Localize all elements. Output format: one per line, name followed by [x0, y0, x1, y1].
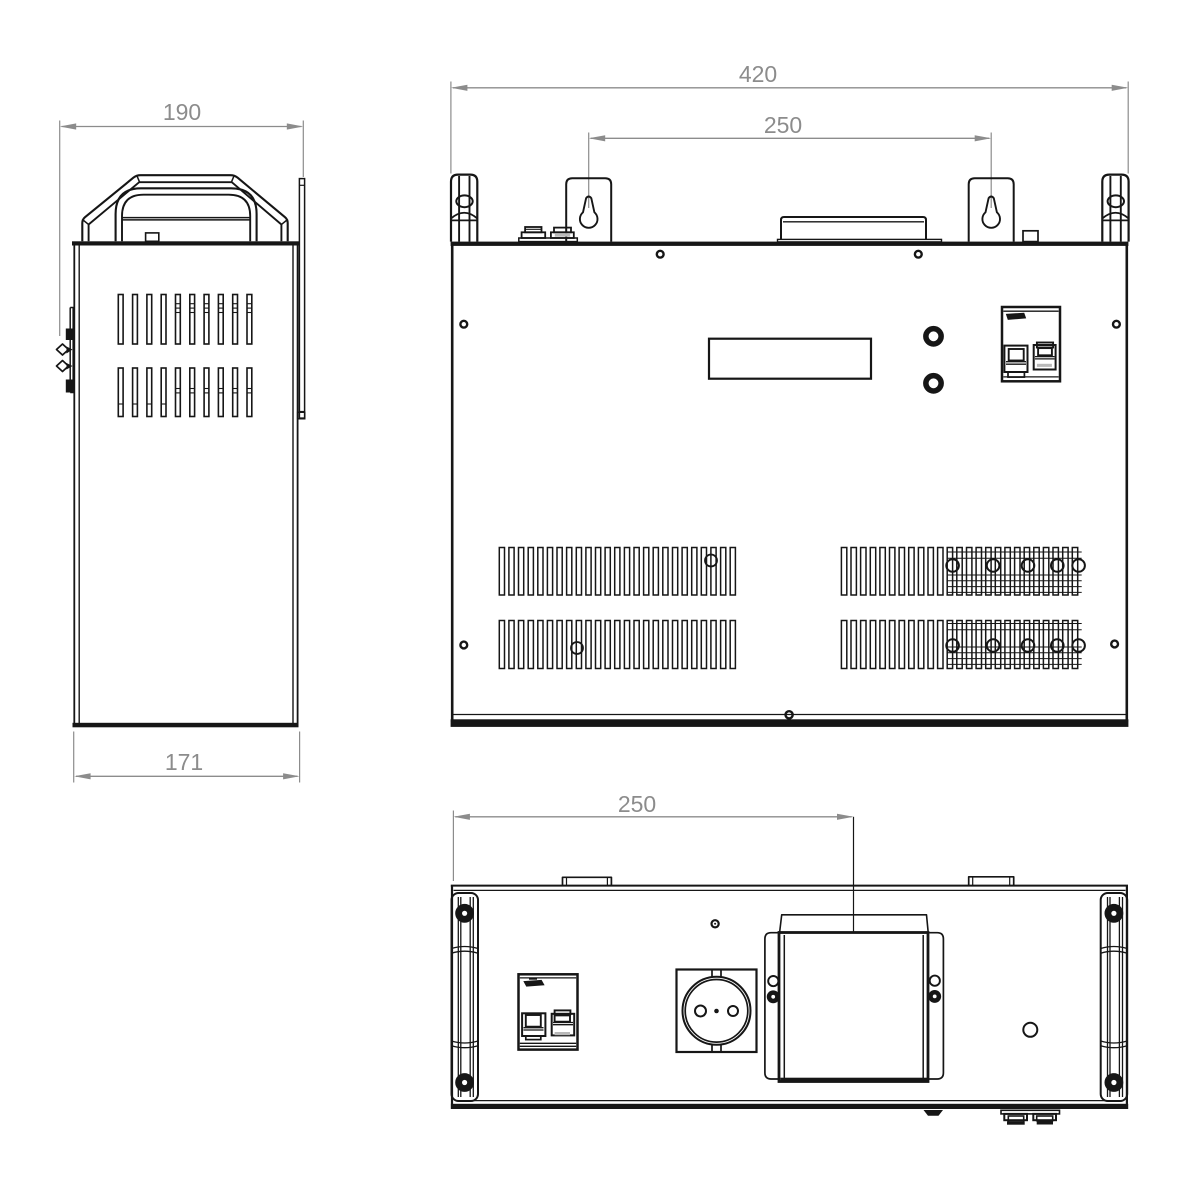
- svg-text:250: 250: [618, 791, 656, 817]
- svg-text:190: 190: [163, 99, 201, 125]
- svg-text:171: 171: [165, 749, 203, 775]
- svg-text:250: 250: [764, 112, 802, 138]
- svg-text:420: 420: [739, 61, 777, 87]
